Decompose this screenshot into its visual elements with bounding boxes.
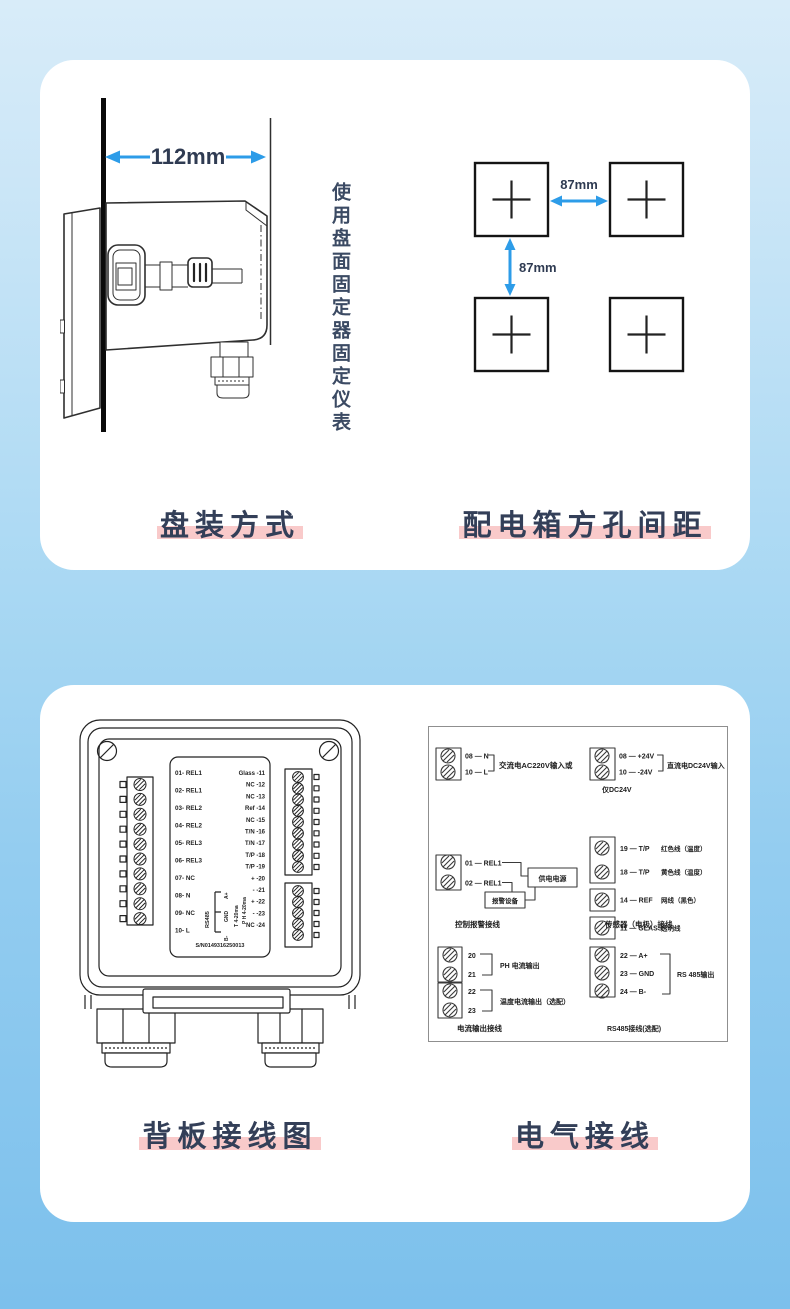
- mounting-hole-square: [610, 298, 683, 371]
- power-supply-box: 供电电源: [538, 874, 567, 883]
- terminal-label: NC -15: [246, 818, 266, 824]
- current-pin: 22: [468, 989, 476, 996]
- electrical-wiring-diagram: 08 — N 10 — L 交流电AC220V输入 或 08 — +24V 10…: [428, 726, 728, 1042]
- sensor-pins: 19 — T/P: [620, 846, 650, 853]
- terminal-label: Ref -14: [245, 806, 266, 812]
- terminal-label: T/P -19: [245, 865, 265, 871]
- mounting-hole-square: [475, 298, 548, 371]
- depth-dimension-arrow: 112mm: [105, 144, 266, 169]
- terminal-label: NC -13: [246, 794, 266, 800]
- dc-label: 直流电DC24V输入: [667, 761, 725, 770]
- sensor-desc: 网线（黑色）: [661, 896, 700, 905]
- rs485-pin-label: GND: [224, 911, 230, 923]
- ac-or-label: 或: [565, 760, 573, 770]
- terminal-label: + -22: [251, 900, 266, 906]
- terminal-label: 05- REL3: [175, 840, 202, 847]
- rs485-row: 24 — B-: [620, 989, 647, 996]
- dc-note: 仅DC24V: [601, 785, 632, 794]
- depth-dimension-label: 112mm: [151, 144, 226, 169]
- hole-spacing-diagram: 87mm 87mm: [455, 140, 715, 390]
- dc-row2: 10 — -24V: [619, 770, 653, 777]
- mounting-note: 使用盘面固定器固定仪表: [326, 182, 353, 432]
- rs485-label: RS 485输出: [677, 970, 714, 979]
- current-pin: 23: [468, 1008, 476, 1015]
- rs485-row: 23 — GND: [620, 971, 654, 978]
- terminal-label: 10- L: [175, 928, 190, 935]
- caption-electrical-wiring: 电气接线: [420, 1113, 750, 1155]
- current-pin: 20: [468, 953, 476, 960]
- analog-ph-label: P H 4-20ma: [242, 897, 248, 924]
- rs485-caption: RS485接线(选配): [607, 1024, 661, 1033]
- terminal-label: T/N -17: [245, 841, 266, 847]
- terminal-label: - -23: [253, 911, 266, 917]
- current-label: 温度电流输出（选配）: [500, 997, 570, 1006]
- horizontal-gap-label: 87mm: [560, 177, 598, 192]
- analog-t-label: T 4-20ma: [234, 905, 240, 927]
- mounting-hole-square: [610, 163, 683, 236]
- sensor-desc: 黄色线（温度）: [661, 868, 707, 877]
- relay-row2: 02 — REL1: [465, 881, 502, 888]
- horizontal-gap-arrow: 87mm: [550, 177, 608, 207]
- terminal-label: 03- REL2: [175, 805, 202, 812]
- rs485-pin-label: A+: [224, 892, 230, 899]
- ac-row2: 10 — L: [465, 770, 489, 777]
- ac-label: 交流电AC220V输入: [499, 760, 565, 770]
- alarm-device-box: 报警设备: [492, 896, 519, 905]
- instrument-front-bezel: [60, 208, 100, 418]
- sensor-pins: 18 — T/P: [620, 870, 650, 877]
- terminal-label: T/N -16: [245, 830, 266, 836]
- serial-number: S/N0149316250013: [196, 943, 245, 949]
- rs485-pin-label: B-: [224, 935, 230, 941]
- rs485-label: RS485: [205, 911, 211, 928]
- sensor-caption: 传感器（电极）接线: [604, 919, 673, 929]
- terminal-label: 04- REL2: [175, 823, 202, 830]
- backpanel-diagram: 01- REL1 02- REL1 03- REL2 04- REL2 05- …: [75, 715, 395, 1075]
- terminal-label: 02- REL1: [175, 788, 202, 795]
- ac-row1: 08 — N: [465, 754, 489, 761]
- vertical-gap-label: 87mm: [519, 260, 557, 275]
- terminal-label: 01- REL1: [175, 770, 202, 777]
- sensor-desc: 红色线（温度）: [661, 844, 707, 853]
- terminal-label: 06- REL3: [175, 858, 202, 865]
- bottom-rail: [143, 989, 290, 1013]
- terminal-label: Glass -11: [239, 771, 266, 777]
- caption-hole-spacing: 配电箱方孔间距: [420, 502, 750, 544]
- panel-mount-card: 112mm 使用盘面固定器固定仪表: [40, 60, 750, 570]
- relay-caption: 控制报警接线: [455, 919, 500, 929]
- terminal-block-right-bottom: [285, 883, 319, 947]
- current-pin: 21: [468, 972, 476, 979]
- terminal-label: + -20: [251, 876, 266, 882]
- terminal-label: 08- N: [175, 893, 191, 900]
- sensor-pins: 14 — REF: [620, 898, 653, 905]
- vertical-gap-arrow: 87mm: [505, 238, 557, 296]
- wiring-card: 01- REL1 02- REL1 03- REL2 04- REL2 05- …: [40, 685, 750, 1222]
- terminal-label: T/P -18: [245, 853, 265, 859]
- terminal-label: NC -12: [246, 783, 266, 789]
- terminal-label: NC -24: [246, 923, 266, 929]
- mounting-hole-square: [475, 163, 548, 236]
- page: 112mm 使用盘面固定器固定仪表: [0, 0, 790, 1309]
- enclosure: [80, 720, 360, 995]
- current-label: PH 电流输出: [500, 961, 540, 970]
- caption-backpanel-wiring: 背板接线图: [40, 1113, 420, 1155]
- terminal-label: 09- NC: [175, 910, 195, 917]
- panel-mount-side-view-diagram: 112mm: [60, 90, 350, 450]
- dc-row1: 08 — +24V: [619, 754, 655, 761]
- caption-mounting-method: 盘装方式: [40, 502, 420, 544]
- current-caption: 电流输出接线: [457, 1023, 502, 1033]
- rs485-row: 22 — A+: [620, 953, 648, 960]
- relay-row1: 01 — REL1: [465, 861, 502, 868]
- cable-gland: [211, 342, 253, 398]
- terminal-label: 07- NC: [175, 875, 195, 882]
- terminal-label: - -21: [253, 888, 266, 894]
- cable-gland-left: [97, 1009, 175, 1067]
- cable-gland-right: [258, 1009, 323, 1067]
